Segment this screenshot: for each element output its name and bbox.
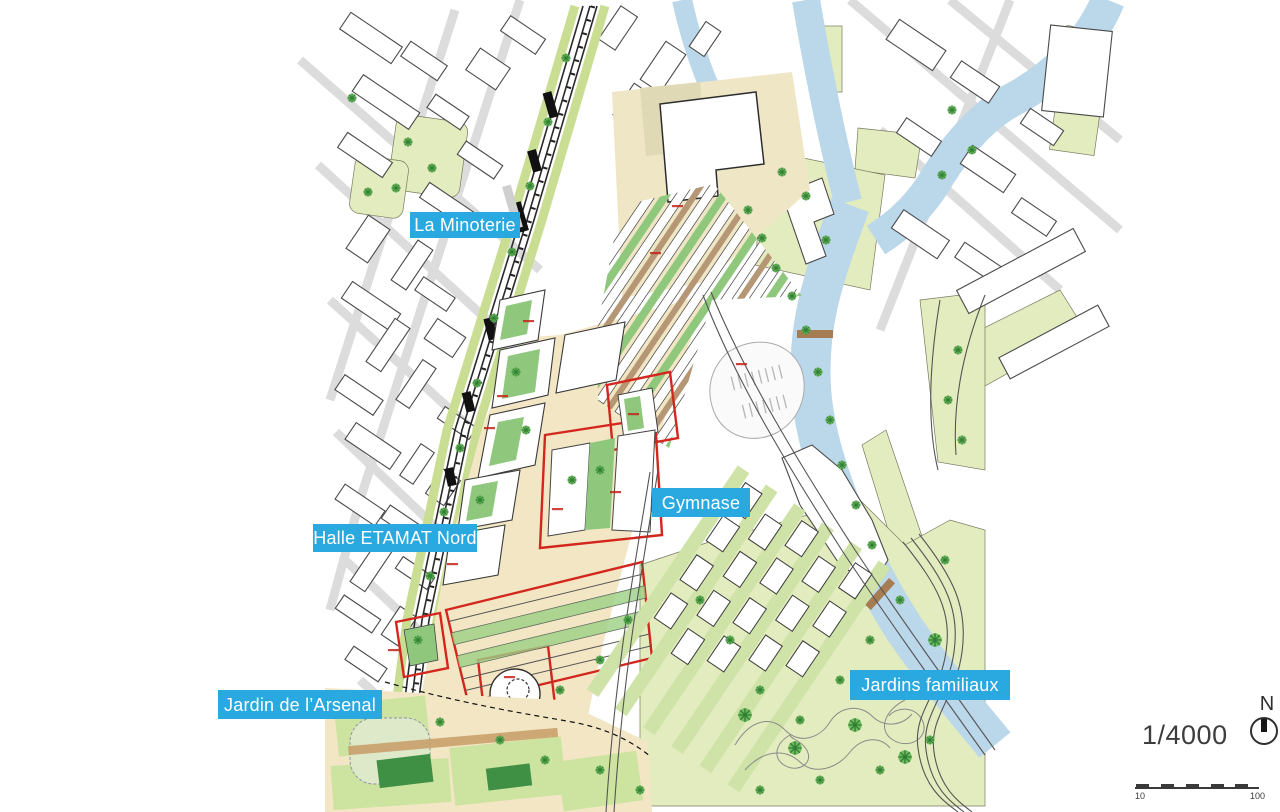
label-gymnase: Gymnase <box>652 488 750 517</box>
scale-bar: 10 100 <box>1135 782 1259 800</box>
label-halle-etamat-nord: Halle ETAMAT Nord <box>313 524 477 552</box>
label-jardins-familiaux: Jardins familiaux <box>850 670 1010 700</box>
label-la-minoterie: La Minoterie <box>410 212 520 238</box>
scale-bar-end: 100 <box>1250 791 1265 801</box>
compass-icon <box>1250 717 1278 745</box>
north-label: N <box>1254 694 1280 714</box>
north-arrow: N <box>1240 694 1280 745</box>
map-scale-text: 1/4000 <box>1142 720 1228 751</box>
scale-bar-start: 10 <box>1135 791 1145 801</box>
map-canvas <box>0 0 1280 812</box>
urban-plan-map: La Minoterie Halle ETAMAT Nord Gymnase J… <box>0 0 1280 812</box>
parking-lot <box>710 342 804 438</box>
label-jardin-arsenal: Jardin de l’Arsenal <box>218 690 382 719</box>
